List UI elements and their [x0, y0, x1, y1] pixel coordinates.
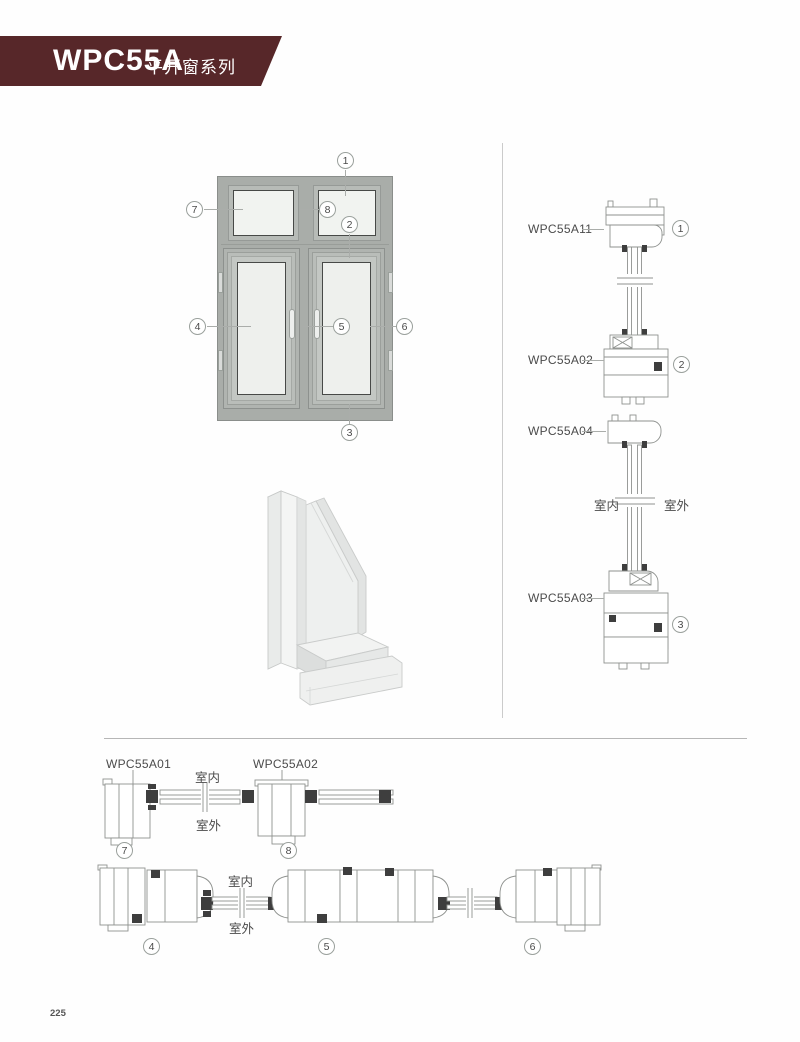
leader-line — [349, 404, 350, 424]
callout-number: 7 — [192, 204, 198, 216]
callout-number: 8 — [286, 845, 292, 857]
leader-line — [300, 209, 319, 210]
section-callout-2: 2 — [673, 356, 690, 373]
section-callout-6: 6 — [524, 938, 541, 955]
profile-sash-wpc55a04 — [608, 415, 661, 448]
callout-number: 3 — [347, 427, 353, 439]
callout-number: 5 — [324, 941, 330, 953]
glass-pane — [233, 190, 294, 236]
leader-line — [303, 326, 333, 327]
leader-line — [582, 229, 604, 230]
fixed-pane-left — [228, 185, 299, 241]
profile-transom-wpc55a02 — [604, 335, 668, 404]
callout-number: 1 — [678, 223, 684, 235]
leader-line — [345, 170, 346, 196]
outdoor-label: 室外 — [229, 918, 254, 937]
callout-number: 1 — [343, 155, 349, 167]
section-callout-1: 1 — [672, 220, 689, 237]
callout-3: 3 — [341, 424, 358, 441]
iso-glass-unit — [306, 498, 366, 649]
page-number: 225 — [50, 1008, 66, 1019]
indoor-label: 室内 — [195, 767, 220, 786]
catalog-page: WPC55A 平开窗系列 1 2 — [0, 0, 800, 1042]
profile-mullion-wpc55a02 — [255, 780, 308, 844]
callout-number: 7 — [122, 845, 128, 857]
profile-frame-wpc55a01 — [103, 779, 150, 845]
iso-jamb-profile — [268, 491, 306, 669]
section-callout-8: 8 — [280, 842, 297, 859]
isometric-corner-view — [250, 477, 415, 712]
leader-line — [582, 360, 604, 361]
callout-2: 2 — [341, 216, 358, 233]
profile-bottom-frame-wpc55a03 — [604, 571, 668, 669]
front-elevation-drawing — [217, 176, 393, 421]
callout-number: 3 — [678, 619, 684, 631]
callout-1: 1 — [337, 152, 354, 169]
section-callout-5: 5 — [318, 938, 335, 955]
profile-meeting-stiles — [272, 867, 449, 923]
glazing-lower — [615, 445, 655, 571]
section-callout-4: 4 — [143, 938, 160, 955]
series-name: 平开窗系列 — [146, 53, 236, 78]
profile-frame-right — [557, 865, 601, 931]
vertical-divider — [502, 143, 503, 718]
callout-8: 8 — [319, 201, 336, 218]
callout-number: 2 — [679, 359, 685, 371]
callout-number: 8 — [325, 204, 331, 216]
section-callout-7: 7 — [116, 842, 133, 859]
callout-4: 4 — [189, 318, 206, 335]
profile-top-frame-wpc55a11 — [606, 199, 664, 252]
callout-7: 7 — [186, 201, 203, 218]
callout-number: 4 — [149, 941, 155, 953]
callout-6: 6 — [396, 318, 413, 335]
profile-label-wpc55a01: WPC55A01 — [106, 757, 171, 771]
hinge — [388, 272, 393, 293]
glazing-run-right — [305, 790, 393, 804]
callout-number: 4 — [195, 321, 201, 333]
indoor-label: 室内 — [228, 871, 253, 890]
outdoor-label: 室外 — [196, 815, 221, 834]
leader-line — [204, 209, 243, 210]
leader-line — [207, 326, 251, 327]
window-handle-left — [289, 309, 295, 339]
section-callout-3: 3 — [672, 616, 689, 633]
callout-number: 6 — [530, 941, 536, 953]
leader-line — [370, 326, 396, 327]
profile-label-wpc55a02-h: WPC55A02 — [253, 757, 318, 771]
hinge — [218, 272, 223, 293]
window-handle-right — [314, 309, 320, 339]
hinge — [388, 350, 393, 371]
leader-line — [582, 431, 606, 432]
indoor-label: 室内 — [594, 495, 619, 514]
horizontal-section-bottom-drawing — [95, 862, 605, 937]
callout-number: 5 — [339, 321, 345, 333]
hinge — [218, 350, 223, 371]
series-banner: WPC55A 平开窗系列 — [0, 36, 282, 86]
callout-number: 2 — [347, 219, 353, 231]
transom-seam — [221, 244, 389, 245]
iso-sill-profile — [297, 633, 402, 705]
leader-line — [349, 234, 350, 258]
outdoor-label: 室外 — [664, 495, 689, 514]
callout-5: 5 — [333, 318, 350, 335]
horizontal-divider — [104, 738, 747, 739]
glass-pane — [237, 262, 286, 395]
glazing-run-left — [146, 782, 254, 812]
glazing-upper — [617, 247, 653, 337]
callout-number: 6 — [402, 321, 408, 333]
leader-line — [582, 598, 604, 599]
